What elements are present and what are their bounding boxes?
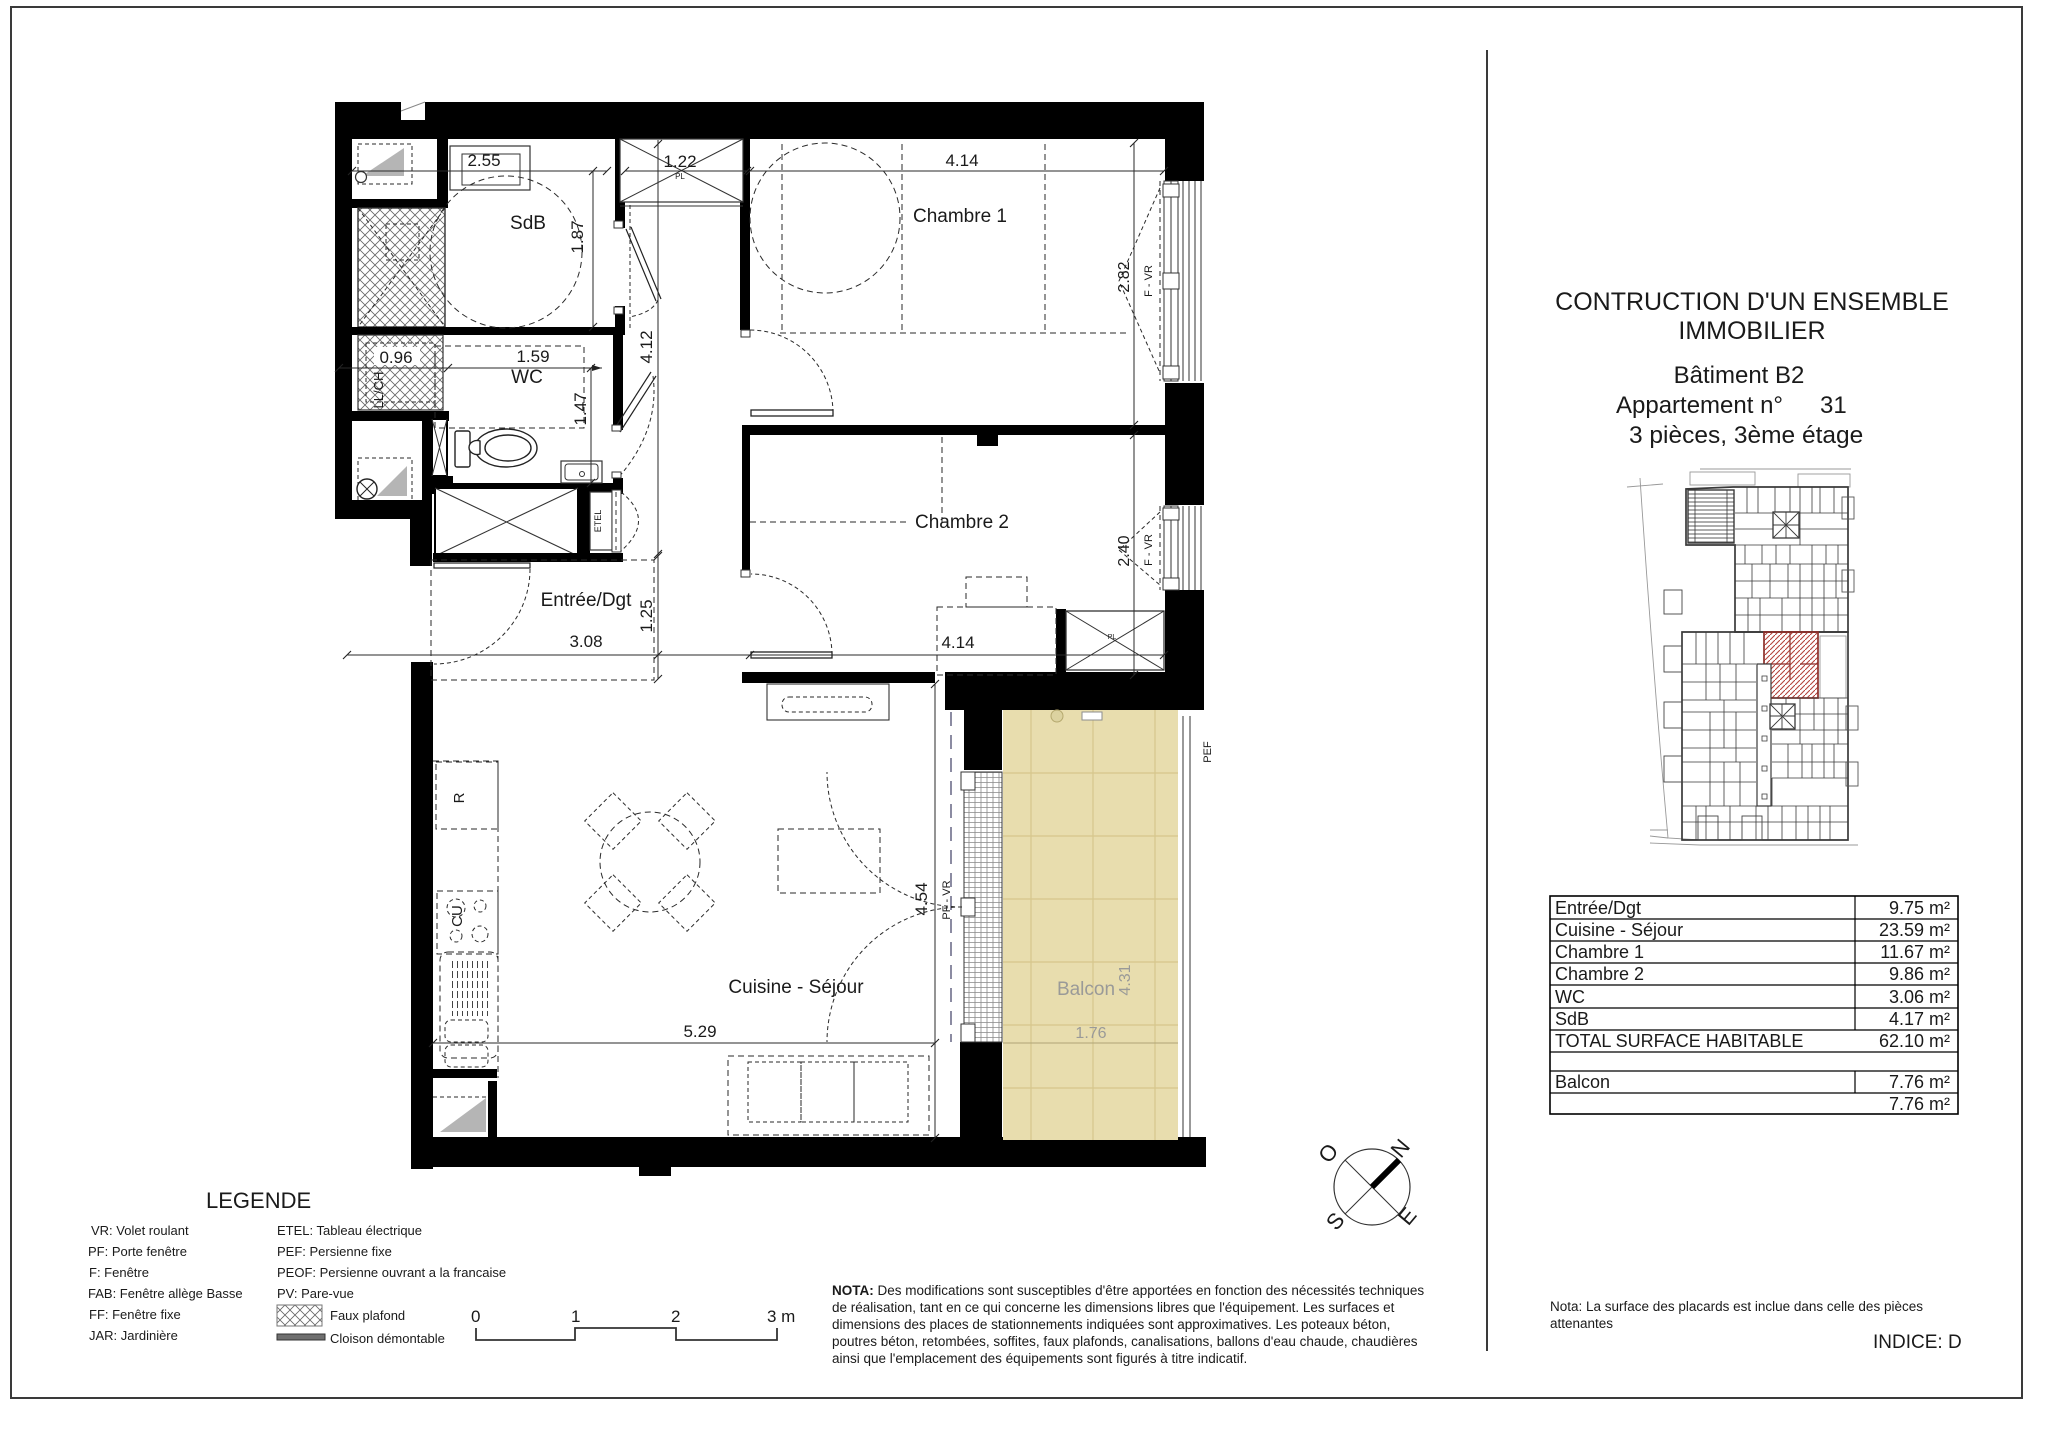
svg-text:Chambre 2: Chambre 2 [1555,964,1644,984]
svg-text:3.08: 3.08 [569,632,602,651]
svg-text:de réalisation, tant en ce qui: de réalisation, tant en ce qui concerne … [832,1300,1395,1315]
svg-text:4.12: 4.12 [637,330,656,363]
svg-text:Entrée/Dgt: Entrée/Dgt [541,590,633,611]
svg-text:0.96: 0.96 [379,348,412,367]
svg-text:4.14: 4.14 [945,151,978,170]
svg-text:3.06 m²: 3.06 m² [1889,987,1950,1007]
svg-text:Chambre 2: Chambre 2 [915,512,1009,533]
svg-text:LL/CH: LL/CH [371,372,386,409]
svg-text:PF - VR: PF - VR [941,880,953,919]
svg-text:9.75 m²: 9.75 m² [1889,898,1950,918]
svg-text:23.59 m²: 23.59 m² [1879,920,1950,940]
svg-text:ETEL: Tableau électrique: ETEL: Tableau électrique [277,1223,422,1238]
svg-text:IMMOBILIER: IMMOBILIER [1678,317,1825,345]
svg-text:9.86 m²: 9.86 m² [1889,964,1950,984]
svg-text:F - VR: F - VR [1143,534,1155,566]
svg-text:1.59: 1.59 [516,347,549,366]
svg-text:0: 0 [471,1307,480,1326]
svg-text:1.25: 1.25 [637,599,656,632]
svg-text:1.22: 1.22 [663,152,696,171]
svg-text:NOTA: Des modifications sont: NOTA: Des modifications sont susceptible… [832,1283,1424,1298]
svg-text:Balcon: Balcon [1555,1072,1610,1092]
svg-text:3 pièces, 3ème étage: 3 pièces, 3ème étage [1629,422,1863,449]
svg-text:PL: PL [1108,634,1117,641]
svg-text:FF: Fenêtre fixe: FF: Fenêtre fixe [89,1307,181,1322]
svg-text:Faux plafond: Faux plafond [330,1308,405,1323]
svg-text:WC: WC [1555,987,1585,1007]
svg-text:INDICE: D: INDICE: D [1873,1332,1962,1353]
svg-text:Bâtiment B2: Bâtiment B2 [1674,362,1805,389]
svg-text:7.76 m²: 7.76 m² [1889,1094,1950,1114]
svg-text:PF: Porte fenêtre: PF: Porte fenêtre [88,1244,187,1259]
svg-text:2: 2 [671,1307,680,1326]
svg-text:CONTRUCTION D'UN ENSEMBLE: CONTRUCTION D'UN ENSEMBLE [1555,288,1949,316]
svg-text:1.47: 1.47 [571,392,590,425]
svg-text:Entrée/Dgt: Entrée/Dgt [1555,898,1641,918]
svg-text:1.76: 1.76 [1075,1025,1106,1042]
svg-text:4.14: 4.14 [941,633,974,652]
svg-text:Cloison démontable: Cloison démontable [330,1331,445,1346]
svg-text:SdB: SdB [1555,1009,1589,1029]
svg-text:PEF: PEF [1202,741,1214,763]
svg-text:1: 1 [571,1307,580,1326]
svg-text:3 m: 3 m [767,1307,795,1326]
svg-text:2.55: 2.55 [467,151,500,170]
svg-text:62.10 m²: 62.10 m² [1879,1031,1950,1051]
svg-text:F - VR: F - VR [1143,265,1155,297]
svg-text:4.31: 4.31 [1117,964,1134,995]
svg-text:4.17 m²: 4.17 m² [1889,1009,1950,1029]
svg-text:31: 31 [1820,392,1847,419]
svg-text:11.67 m²: 11.67 m² [1880,942,1950,962]
svg-text:1.87: 1.87 [568,220,587,253]
svg-text:7.76 m²: 7.76 m² [1889,1072,1950,1092]
svg-text:LEGENDE: LEGENDE [206,1188,311,1213]
svg-text:F: Fenêtre: F: Fenêtre [89,1265,149,1280]
svg-text:attenantes: attenantes [1550,1316,1613,1331]
svg-text:PL: PL [675,172,685,181]
svg-text:Balcon: Balcon [1057,979,1115,1000]
svg-text:FAB: Fenêtre allège Basse: FAB: Fenêtre allège Basse [88,1286,243,1301]
svg-text:ETEL: ETEL [593,510,603,533]
svg-text:dimensions des places de stati: dimensions des places de stationnements … [832,1317,1390,1332]
svg-text:PV: Pare-vue: PV: Pare-vue [277,1286,354,1301]
svg-text:VR: Volet roulant: VR: Volet roulant [91,1223,189,1238]
svg-text:CU: CU [449,905,466,927]
svg-text:Chambre 1: Chambre 1 [913,206,1007,227]
svg-text:2.82: 2.82 [1116,261,1133,292]
svg-text:4.54: 4.54 [912,882,931,915]
svg-text:Cuisine - Séjour: Cuisine - Séjour [728,977,864,998]
svg-text:PEOF: Persienne ouvrant a la f: PEOF: Persienne ouvrant a la francaise [277,1265,506,1280]
svg-text:JAR: Jardinière: JAR: Jardinière [89,1328,178,1343]
svg-text:2.40: 2.40 [1116,535,1133,566]
svg-text:Chambre 1: Chambre 1 [1555,942,1644,962]
svg-text:SdB: SdB [510,213,546,234]
svg-text:ainsi que l'emplacement des éq: ainsi que l'emplacement des équipements … [832,1351,1247,1366]
svg-text:5.29: 5.29 [683,1022,716,1041]
svg-text:Nota: La surface des placards: Nota: La surface des placards est inclue… [1550,1299,1923,1314]
svg-text:Cuisine - Séjour: Cuisine - Séjour [1555,920,1683,940]
svg-text:Appartement n°: Appartement n° [1616,392,1783,419]
svg-text:PEF: Persienne fixe: PEF: Persienne fixe [277,1244,392,1259]
svg-text:R: R [451,792,468,803]
svg-text:WC: WC [511,367,543,388]
svg-text:poutres béton, retombées, soff: poutres béton, retombées, soffites, faux… [832,1334,1418,1349]
svg-text:TOTAL SURFACE HABITABLE: TOTAL SURFACE HABITABLE [1555,1031,1803,1051]
